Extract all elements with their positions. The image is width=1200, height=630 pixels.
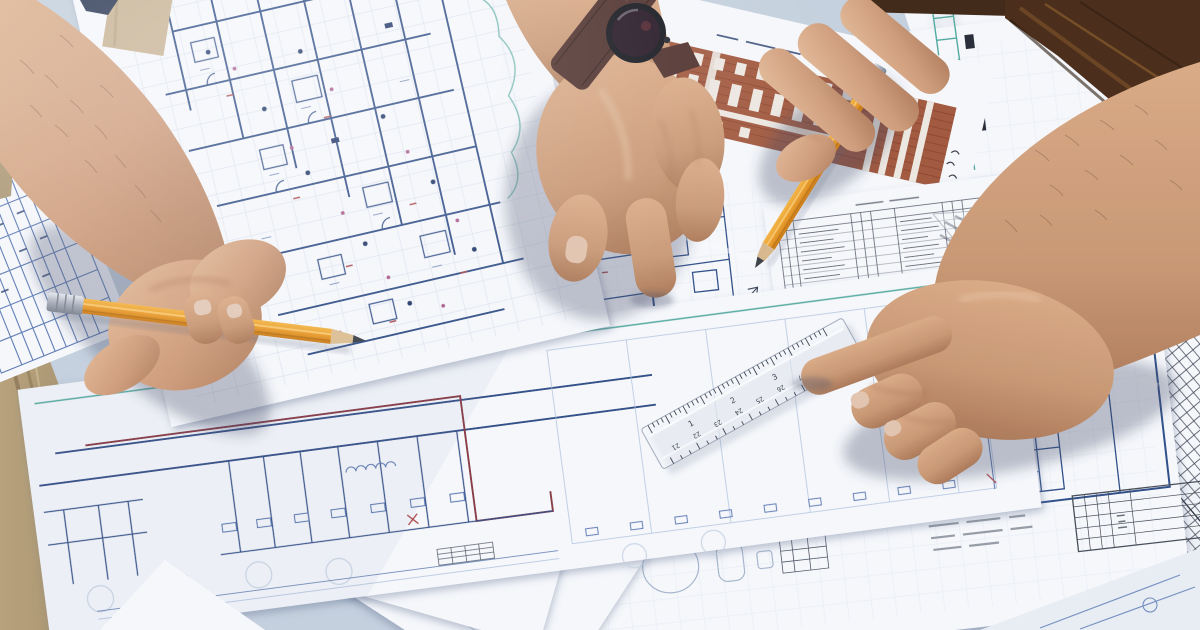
- photo-architects-blueprints: 1 2 3 21 22 23 24 25 26 27 28 29: [0, 0, 1200, 630]
- cool-tint: [0, 0, 1200, 630]
- scene-canvas: 1 2 3 21 22 23 24 25 26 27 28 29: [0, 0, 1200, 630]
